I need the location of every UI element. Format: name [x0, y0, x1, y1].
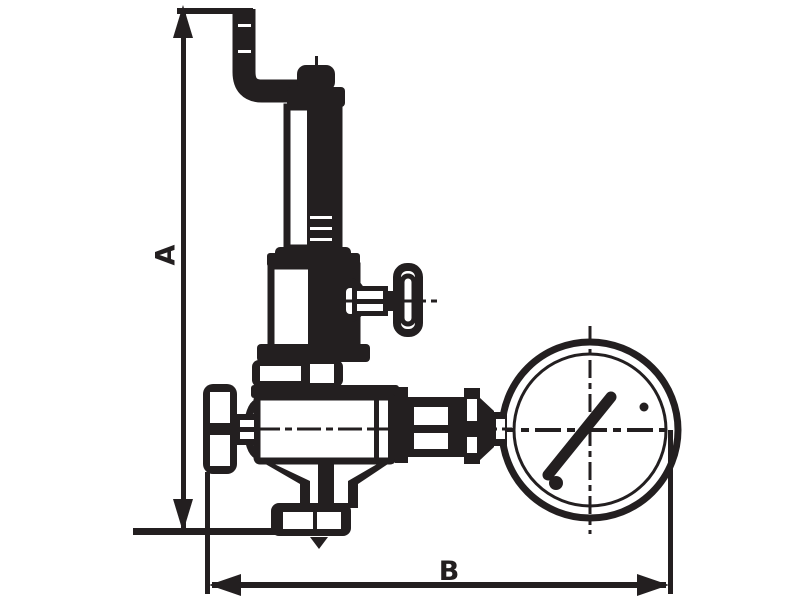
dimension-b-label: B — [439, 556, 460, 587]
outlet — [255, 458, 397, 549]
gauge-needle-hub — [549, 476, 563, 490]
gauge-marker-dot — [640, 403, 649, 412]
stem-thread-mark — [310, 238, 332, 241]
pipe-highlight — [238, 50, 251, 53]
dimension-a-arrow-down-icon — [173, 499, 193, 532]
dimension-b-extension-left — [205, 472, 210, 594]
stem-thread-mark — [310, 227, 332, 230]
main-handwheel — [203, 384, 258, 474]
outlet-core — [318, 458, 334, 508]
fitting-cutout — [414, 433, 448, 449]
fitting-cutout — [414, 407, 448, 425]
body-internal-line — [388, 386, 393, 462]
wheel-cutout — [210, 392, 230, 423]
nut-slit — [467, 399, 477, 421]
spring-bonnet — [275, 104, 351, 265]
dimension-a-line — [181, 10, 186, 530]
pipe-highlight — [238, 24, 251, 27]
dimension-b-arrow-right-icon — [637, 574, 669, 596]
flange-cutout — [317, 512, 341, 529]
dimension-b-arrow-left-icon — [209, 574, 241, 596]
flange-cutout — [283, 512, 313, 529]
valve-technical-drawing: A — [0, 0, 800, 598]
wheel-cutout — [210, 435, 230, 466]
upper-body-bottom-flange — [257, 344, 370, 362]
stem-thread-mark — [310, 216, 332, 219]
technical-drawing-page: A — [0, 0, 800, 598]
nut-cutout — [260, 366, 301, 381]
dimension-b-extension-right — [668, 430, 673, 594]
dimension-a-extension-bottom — [133, 528, 293, 535]
dimension-a-label: A — [151, 244, 182, 265]
main-body — [248, 360, 400, 462]
nut-slit — [467, 437, 477, 453]
gauge-connector — [395, 387, 507, 464]
pressure-gauge — [489, 326, 678, 534]
valve-assembly — [203, 9, 678, 549]
union-nut — [395, 387, 408, 463]
nut-cutout — [310, 364, 334, 383]
outlet-centerline-tick — [310, 537, 328, 549]
body-internal-line — [374, 386, 379, 462]
wheel-stem-centerbar — [236, 427, 258, 432]
